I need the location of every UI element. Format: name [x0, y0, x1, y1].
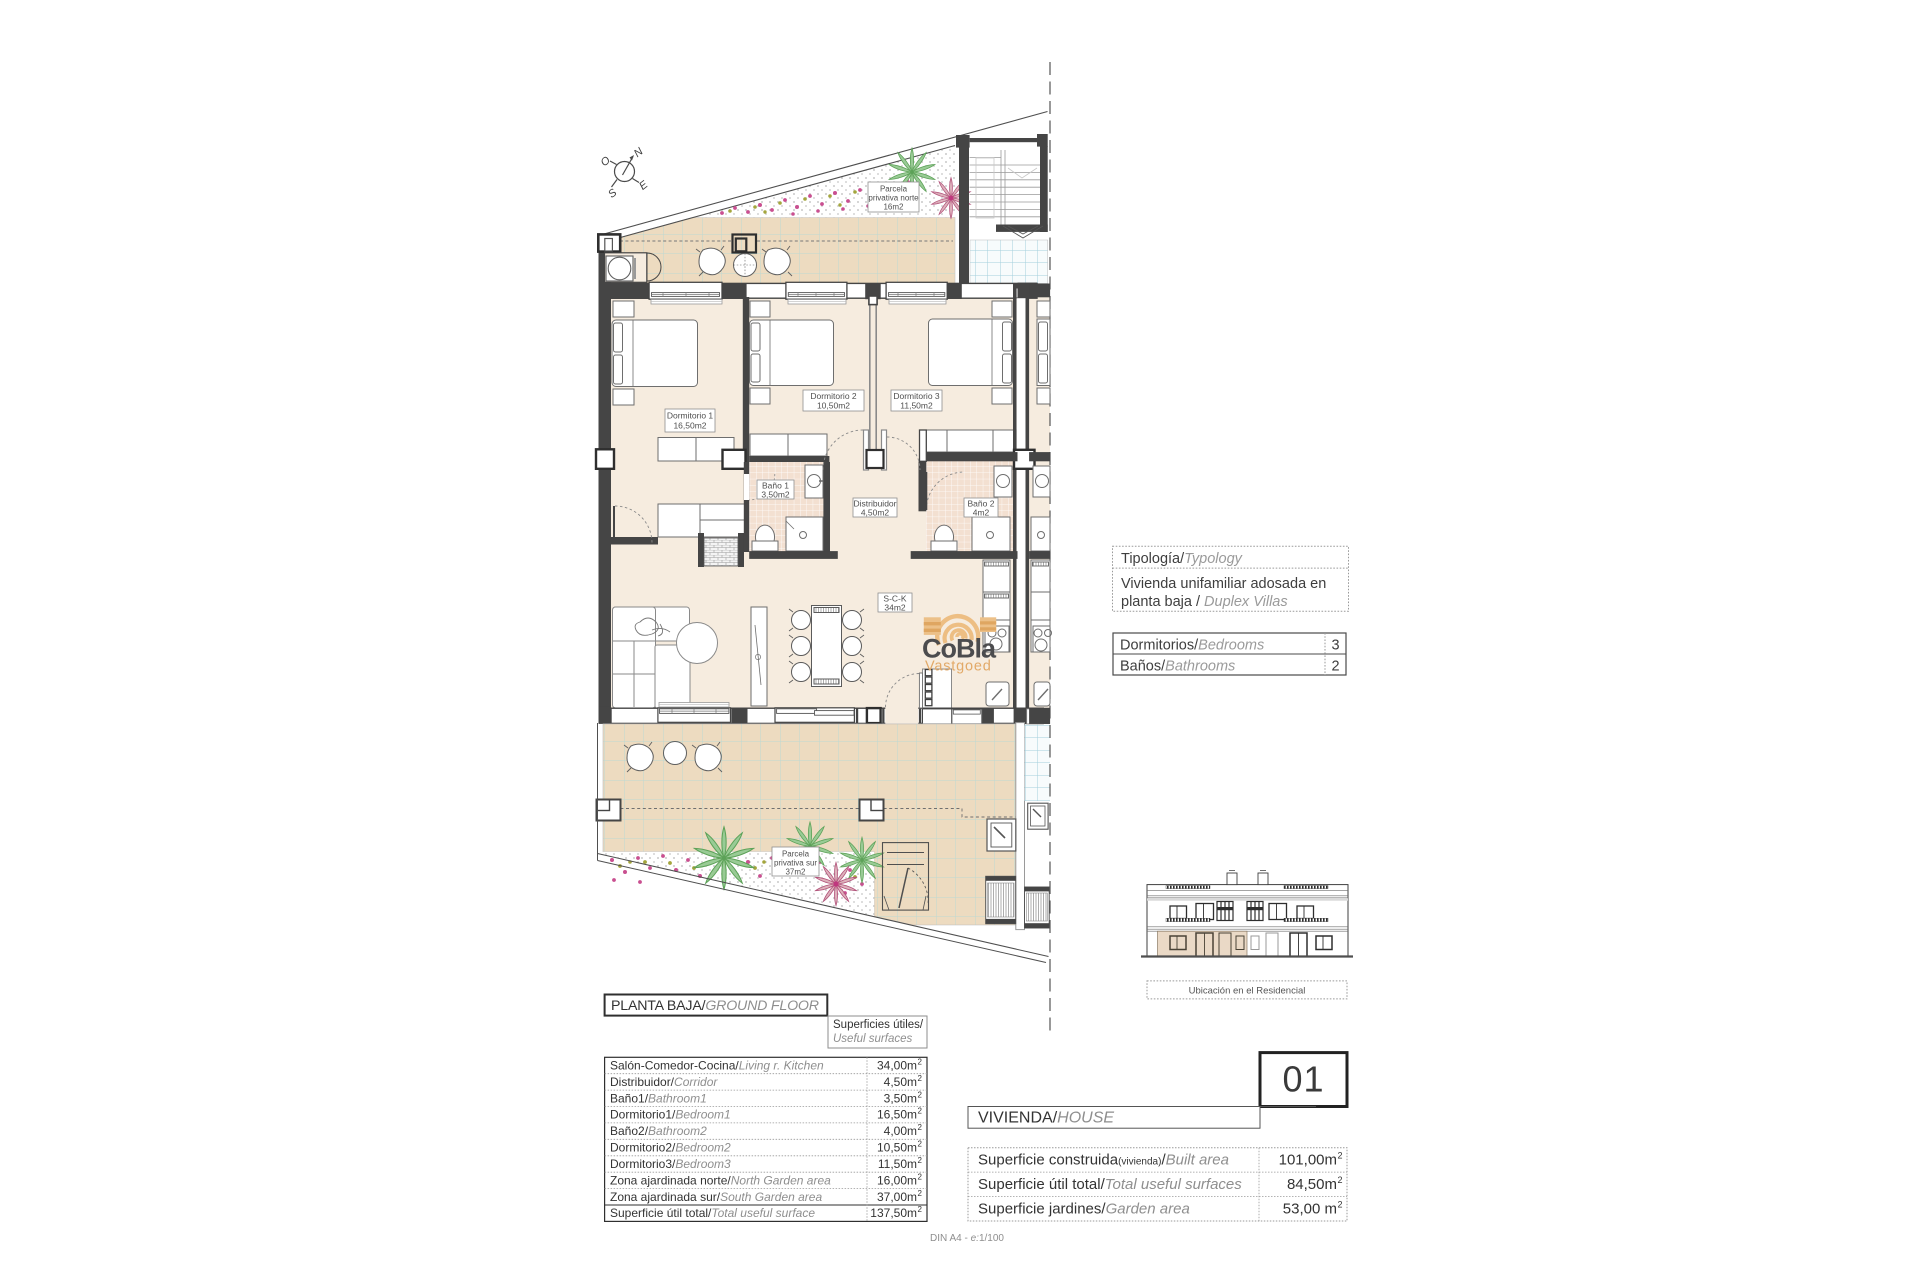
- svg-text:2: 2: [1338, 1151, 1343, 1161]
- svg-text:Superficie jardines/Garden are: Superficie jardines/Garden area: [978, 1201, 1190, 1218]
- svg-text:2: 2: [918, 1205, 923, 1214]
- svg-text:101,00m: 101,00m: [1279, 1152, 1337, 1169]
- svg-text:4m2: 4m2: [973, 508, 990, 518]
- svg-text:PLANTA BAJA/GROUND FLOOR: PLANTA BAJA/GROUND FLOOR: [611, 998, 819, 1014]
- svg-text:16,50m2: 16,50m2: [673, 421, 706, 431]
- svg-text:Useful surfaces: Useful surfaces: [833, 1033, 913, 1045]
- svg-text:3,50m2: 3,50m2: [761, 490, 790, 500]
- svg-text:2: 2: [1338, 1175, 1343, 1185]
- svg-text:2: 2: [918, 1058, 923, 1067]
- svg-text:planta baja / Duplex Villas: planta baja / Duplex Villas: [1121, 594, 1288, 610]
- svg-text:Dormitorios/Bedrooms: Dormitorios/Bedrooms: [1120, 638, 1264, 654]
- svg-text:Dormitorio 3: Dormitorio 3: [893, 391, 940, 401]
- svg-text:Baño1/Bathroom1: Baño1/Bathroom1: [610, 1091, 707, 1105]
- svg-text:Zona ajardinada norte/North Ga: Zona ajardinada norte/North Garden area: [610, 1173, 831, 1187]
- svg-text:4,50m: 4,50m: [884, 1075, 917, 1089]
- svg-text:01: 01: [1282, 1059, 1324, 1100]
- svg-text:11,50m2: 11,50m2: [900, 401, 933, 411]
- svg-text:Zona ajardinada sur/South Gard: Zona ajardinada sur/South Garden area: [610, 1190, 822, 1204]
- svg-text:3: 3: [1331, 638, 1339, 654]
- svg-text:O: O: [599, 154, 613, 169]
- svg-text:Distribuidor/Corridor: Distribuidor/Corridor: [610, 1075, 718, 1089]
- svg-text:Baño2/Bathroom2: Baño2/Bathroom2: [610, 1124, 707, 1138]
- svg-text:Dormitorio2/Bedroom2: Dormitorio2/Bedroom2: [610, 1141, 731, 1155]
- svg-text:S: S: [606, 186, 620, 200]
- svg-text:Vastgoed: Vastgoed: [925, 659, 992, 675]
- svg-text:Superficie útil total/Total us: Superficie útil total/Total useful surfa…: [978, 1176, 1242, 1193]
- svg-text:2: 2: [1338, 1200, 1343, 1210]
- svg-text:Dormitorio 1: Dormitorio 1: [667, 411, 714, 421]
- svg-text:2: 2: [918, 1172, 923, 1181]
- svg-text:Dormitorio1/Bedroom1: Dormitorio1/Bedroom1: [610, 1108, 731, 1122]
- svg-text:4,50m2: 4,50m2: [861, 508, 890, 518]
- svg-text:16m2: 16m2: [883, 203, 904, 212]
- svg-text:2: 2: [918, 1140, 923, 1149]
- svg-text:34m2: 34m2: [884, 603, 906, 613]
- svg-text:10,50m: 10,50m: [877, 1141, 917, 1155]
- svg-text:11,50m: 11,50m: [878, 1157, 917, 1171]
- svg-text:3,50m: 3,50m: [884, 1091, 917, 1105]
- svg-text:Salón-Comedor-Cocina/Living r.: Salón-Comedor-Cocina/Living r. Kitchen: [610, 1059, 824, 1073]
- svg-text:N: N: [632, 146, 646, 160]
- svg-text:16,50m: 16,50m: [877, 1108, 917, 1122]
- svg-text:Parcela: Parcela: [782, 850, 810, 859]
- svg-text:Parcela: Parcela: [880, 185, 908, 194]
- svg-text:Superficie construida(vivienda: Superficie construida(vivienda)/Built ar…: [978, 1152, 1229, 1169]
- svg-text:Tipología/Typology: Tipología/Typology: [1121, 551, 1243, 567]
- svg-text:53,00 m: 53,00 m: [1283, 1201, 1337, 1218]
- svg-text:2: 2: [918, 1156, 923, 1165]
- svg-text:Dormitorio 2: Dormitorio 2: [810, 391, 857, 401]
- svg-text:privativa norte: privativa norte: [868, 194, 919, 203]
- svg-text:37m2: 37m2: [785, 868, 806, 877]
- svg-text:Superficie útil total/Total us: Superficie útil total/Total useful surfa…: [610, 1206, 815, 1220]
- svg-text:10,50m2: 10,50m2: [817, 401, 850, 411]
- svg-text:16,00m: 16,00m: [877, 1173, 917, 1187]
- svg-text:37,00m: 37,00m: [877, 1190, 917, 1204]
- svg-text:2: 2: [918, 1090, 923, 1099]
- svg-text:2: 2: [918, 1123, 923, 1132]
- svg-text:DIN A4 - e:1/100: DIN A4 - e:1/100: [930, 1233, 1004, 1244]
- svg-text:Ubicación en el Residencial: Ubicación en el Residencial: [1189, 986, 1306, 997]
- svg-text:4,00m: 4,00m: [884, 1124, 917, 1138]
- svg-text:VIVIENDA/HOUSE: VIVIENDA/HOUSE: [978, 1110, 1114, 1127]
- svg-text:Dormitorio3/Bedroom3: Dormitorio3/Bedroom3: [610, 1157, 731, 1171]
- svg-text:2: 2: [1331, 659, 1339, 675]
- svg-text:2: 2: [918, 1107, 923, 1116]
- svg-text:34,00m: 34,00m: [877, 1059, 917, 1073]
- svg-text:Superficies útiles/: Superficies útiles/: [833, 1019, 924, 1031]
- svg-text:2: 2: [918, 1074, 923, 1083]
- svg-text:84,50m: 84,50m: [1287, 1176, 1337, 1193]
- svg-text:Vivienda unifamiliar adosada e: Vivienda unifamiliar adosada en: [1121, 576, 1326, 592]
- svg-text:E: E: [637, 178, 651, 192]
- svg-text:Baños/Bathrooms: Baños/Bathrooms: [1120, 659, 1235, 675]
- svg-text:privativa sur: privativa sur: [774, 859, 817, 868]
- svg-text:137,50m: 137,50m: [870, 1206, 917, 1220]
- svg-text:2: 2: [918, 1189, 923, 1198]
